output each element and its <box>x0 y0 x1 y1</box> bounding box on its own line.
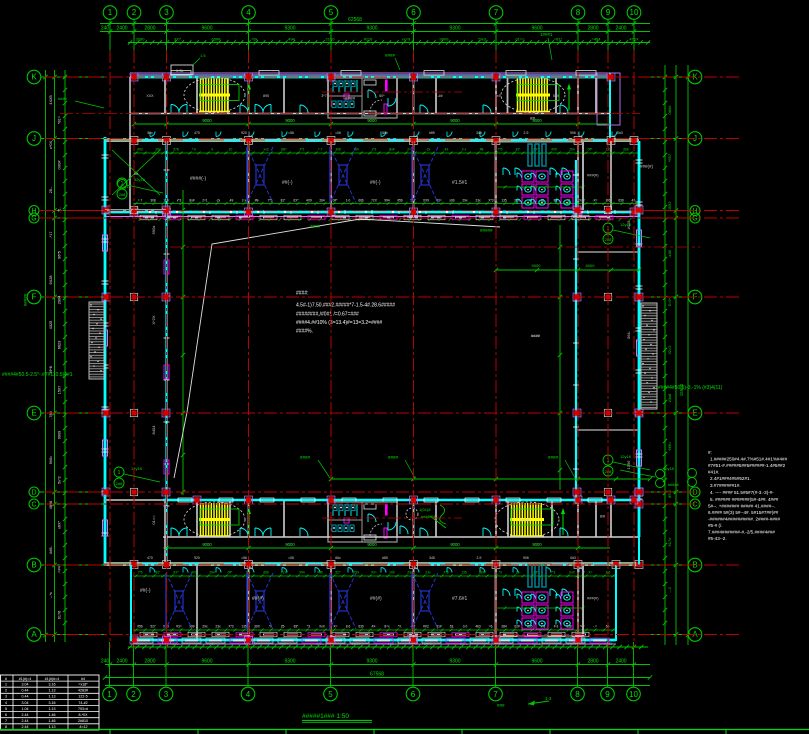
svg-text:5159: 5159 <box>352 641 362 646</box>
svg-text:X*1: X*1 <box>299 148 304 152</box>
svg-text:463: 463 <box>475 625 481 629</box>
svg-text:63.: 63. <box>450 625 455 629</box>
svg-text:8.6: 8.6 <box>346 625 351 629</box>
svg-text:#8*: #8* <box>205 94 211 98</box>
svg-text:2-x: 2-x <box>462 148 467 152</box>
svg-text:29x: 29x <box>462 199 468 203</box>
svg-text:-2x: -2x <box>216 199 221 203</box>
svg-text:135: 135 <box>241 625 247 629</box>
svg-text:#*2=: #*2= <box>280 641 289 646</box>
svg-text:8=x: 8=x <box>384 625 390 629</box>
svg-text:-2x: -2x <box>426 148 431 152</box>
svg-text:1.46: 1.46 <box>49 713 56 717</box>
svg-text:9909: 9909 <box>440 37 450 42</box>
svg-text:B: B <box>31 561 36 570</box>
svg-text:#41#.: #41#. <box>708 470 720 475</box>
svg-text:240: 240 <box>101 659 110 665</box>
svg-text:4X-: 4X- <box>372 625 377 629</box>
svg-text:K: K <box>31 73 37 82</box>
svg-text:########,/#0#1 /=0.67=###: ########,/#0#1 /=0.67=### <box>296 312 359 318</box>
svg-text:####%.: ####%. <box>296 329 313 335</box>
svg-text:6*#9: 6*#9 <box>424 641 433 646</box>
svg-text:6: 6 <box>411 8 416 17</box>
svg-text:906: 906 <box>570 131 576 135</box>
svg-text:9300: 9300 <box>284 659 295 665</box>
svg-text:####: #### <box>345 96 356 101</box>
svg-text:=6.: =6. <box>489 625 494 629</box>
svg-text:2#810: 2#810 <box>78 719 88 723</box>
svg-text:A: A <box>31 630 37 639</box>
svg-text:4: 4 <box>246 690 251 699</box>
svg-text:####(-): ####(-) <box>190 176 206 182</box>
svg-text:-X=: -X= <box>587 571 592 575</box>
svg-text:1###1: 1###1 <box>540 32 553 37</box>
svg-text:.*1.: .*1. <box>58 207 62 213</box>
svg-text:##(-): ##(-) <box>140 588 151 594</box>
svg-text:#1.5#1: #1.5#1 <box>452 180 468 186</box>
svg-text:29x: 29x <box>202 625 208 629</box>
svg-text:01==: 01== <box>151 515 156 525</box>
svg-text:2400: 2400 <box>615 659 626 665</box>
svg-text:39X: 39X <box>254 625 261 629</box>
svg-text:1-0: 1-0 <box>346 199 351 203</box>
svg-text:#4: #4 <box>81 677 85 681</box>
svg-text:9300: 9300 <box>449 26 460 32</box>
svg-text:527: 527 <box>150 625 156 629</box>
svg-text:62568: 62568 <box>348 17 362 23</box>
svg-text:194: 194 <box>353 148 359 152</box>
svg-text:920: 920 <box>241 131 247 135</box>
svg-text:####: #### <box>58 96 68 101</box>
svg-text:##(-): ##(-) <box>282 180 293 186</box>
svg-text:3.16: 3.16 <box>49 701 56 705</box>
svg-text:0.5L: 0.5L <box>176 68 185 73</box>
svg-text:2800: 2800 <box>144 659 155 665</box>
svg-text:6.#### 5#(3) 5#--4#. 5#15#7##(: 6.#### 5#(3) 5#--4#. 5#15#7##(## <box>708 510 779 515</box>
svg-text:=56: =56 <box>241 556 247 560</box>
svg-text:12y18: 12y18 <box>620 454 632 459</box>
svg-text:8x#: 8x# <box>189 199 194 203</box>
svg-text:3*7: 3*7 <box>321 94 326 98</box>
svg-text:906: 906 <box>523 556 529 560</box>
svg-text:*3.: *3. <box>552 571 556 575</box>
svg-text:994: 994 <box>384 199 390 203</box>
svg-text:345: 345 <box>429 556 435 560</box>
svg-text:7: 7 <box>493 690 498 699</box>
svg-text:83*: 83* <box>294 625 300 629</box>
svg-text:####4#50.5-2.5*-.#7#110.5)4#1: ####4#50.5-2.5*-.#7#110.5)4#1 <box>2 372 73 378</box>
svg-text:C: C <box>692 502 697 509</box>
svg-text:53X: 53X <box>553 94 560 98</box>
svg-text:x*3: x*3 <box>177 199 182 203</box>
svg-text:2-x: 2-x <box>242 199 247 203</box>
svg-text:284: 284 <box>501 625 507 629</box>
svg-text:4X9: 4X9 <box>551 148 557 152</box>
svg-text:8-*0X: 8-*0X <box>79 713 89 717</box>
svg-text:xx=9: xx=9 <box>402 37 411 42</box>
svg-text:#: # <box>5 677 7 681</box>
svg-text:6176: 6176 <box>58 611 62 619</box>
svg-text:4325: 4325 <box>49 321 53 329</box>
svg-text:3.16: 3.16 <box>49 683 56 687</box>
svg-text:4.5#-1)7.50.###2.#####*7-1.5-4: 4.5#-1)7.50.###2.#####*7-1.5-4#.28.6####… <box>296 303 395 309</box>
svg-text:122-5: 122-5 <box>78 695 87 699</box>
svg-text:1: 1 <box>108 8 113 17</box>
svg-text:=x18*: =x18* <box>78 683 88 687</box>
svg-text:###(#): ###(#) <box>587 173 599 178</box>
svg-text:#####: ##### <box>480 228 493 233</box>
svg-text:####:: ####: <box>296 291 309 297</box>
svg-text:D: D <box>31 490 36 497</box>
svg-text:#####1### 1:50: #####1### 1:50 <box>302 713 349 720</box>
svg-text:H: H <box>31 208 36 215</box>
svg-text:62#: 62# <box>514 625 520 629</box>
svg-text:527: 527 <box>335 571 341 575</box>
svg-text:72X: 72X <box>371 199 378 203</box>
svg-text:=454: =454 <box>591 37 601 42</box>
svg-text:6: 6 <box>411 690 416 699</box>
svg-text:##: ## <box>530 116 536 121</box>
svg-text:.=#4: .=#4 <box>58 566 62 574</box>
svg-text:666: 666 <box>623 148 629 152</box>
svg-text:2#8: 2#8 <box>116 481 123 486</box>
svg-text:01==: 01== <box>515 37 525 42</box>
svg-text:4898: 4898 <box>49 501 53 509</box>
svg-text:.10: .10 <box>228 148 233 152</box>
svg-text:0592: 0592 <box>667 201 672 211</box>
svg-text:1-2: 1-2 <box>545 696 552 701</box>
svg-text:####: #### <box>388 455 399 460</box>
svg-text:2: 2 <box>132 8 137 17</box>
svg-text:9000: 9000 <box>532 542 542 547</box>
svg-text:2400: 2400 <box>116 26 127 32</box>
svg-text:5xx: 5xx <box>147 131 153 135</box>
svg-text:9300: 9300 <box>449 659 460 665</box>
svg-text:.*1.: .*1. <box>209 641 215 646</box>
svg-text:308: 308 <box>150 199 156 203</box>
svg-text:0#3: 0#3 <box>570 556 576 560</box>
svg-text:#8-: #8- <box>255 199 260 203</box>
svg-text:-*17: -*17 <box>49 232 53 239</box>
svg-text:4. ---- #### 51.5#5#7(#-3.-3)-: 4. ---- #### 51.5#5#7(#-3.-3)-#- <box>710 490 774 495</box>
svg-text:10: 10 <box>630 8 639 17</box>
svg-text:=06: =06 <box>288 556 294 560</box>
svg-text:2-9: 2-9 <box>524 131 529 135</box>
svg-text:6X*: 6X* <box>173 571 179 575</box>
svg-text:12y18: 12y18 <box>131 466 143 471</box>
svg-text:5=9*: 5=9* <box>667 297 672 306</box>
svg-text:1.13: 1.13 <box>49 689 56 693</box>
svg-text:9300: 9300 <box>366 659 377 665</box>
svg-text:0.44: 0.44 <box>22 689 29 693</box>
svg-text:=06: =06 <box>335 131 341 135</box>
svg-text:#89: #89 <box>429 131 435 135</box>
svg-text:#7#51-#.#####5##5######-1.4#5#: #7#51-#.#####5##5######-1.4#5##2 <box>708 463 786 468</box>
svg-text:81*: 81* <box>281 199 287 203</box>
svg-text:=.7: =.7 <box>138 199 143 203</box>
svg-text:9: 9 <box>606 8 611 17</box>
svg-text:#89: #89 <box>382 556 388 560</box>
svg-text:7.###4#######-#.-2/5.####4###: 7.###4#######-#.-2/5.####4### <box>708 530 775 535</box>
svg-text:52y18: 52y18 <box>134 177 146 182</box>
svg-text:H: H <box>692 208 697 215</box>
svg-text:0.44: 0.44 <box>22 695 29 699</box>
svg-text:72X: 72X <box>281 571 288 575</box>
svg-text:####: #### <box>300 455 311 460</box>
svg-text:7*5: 7*5 <box>268 199 273 203</box>
svg-text:##: ## <box>134 171 139 176</box>
svg-text:2800: 2800 <box>587 659 598 665</box>
svg-text:81*: 81* <box>516 148 522 152</box>
svg-text:.49: .49 <box>229 199 234 203</box>
svg-text:9000: 9000 <box>450 542 460 547</box>
svg-text:J: J <box>32 134 36 143</box>
svg-text:4: 4 <box>246 8 251 17</box>
svg-text:2.4#1###4#5#52#1.: 2.4#1###4#5#52#1. <box>710 476 751 481</box>
svg-text:23x: 23x <box>475 199 481 203</box>
svg-text:1.04: 1.04 <box>22 707 29 711</box>
svg-text:590x: 590x <box>151 226 156 235</box>
svg-text:1(01(#: 1(01(# <box>419 507 431 512</box>
svg-text:25-: 25- <box>281 625 286 629</box>
svg-text:x*3: x*3 <box>372 148 377 152</box>
svg-text:9000: 9000 <box>367 118 377 123</box>
svg-text:#56: #56 <box>317 571 323 575</box>
svg-text:9000: 9000 <box>285 118 295 123</box>
svg-text:C: C <box>31 502 36 509</box>
svg-text:=.7: =.7 <box>318 148 323 152</box>
svg-text:##6-: ##6- <box>49 545 53 553</box>
svg-text:3.#7######1#.: 3.#7######1#. <box>710 483 741 488</box>
svg-text:1: 1 <box>118 470 121 476</box>
svg-text:#X2: #X2 <box>423 625 429 629</box>
svg-text:470: 470 <box>147 556 153 560</box>
svg-text:67568: 67568 <box>370 672 384 678</box>
svg-text:639: 639 <box>618 199 624 203</box>
svg-text:#-3: #-3 <box>554 625 559 629</box>
svg-text:-######4##########. 2####-####: -######4##########. 2####-#### <box>708 517 780 522</box>
svg-text:320-: 320- <box>172 641 181 646</box>
svg-text:2800: 2800 <box>144 26 155 32</box>
svg-text:#3=: #3= <box>371 571 377 575</box>
svg-text:#56: #56 <box>137 625 143 629</box>
svg-text:578: 578 <box>173 148 179 152</box>
svg-text:42X5: 42X5 <box>531 641 541 646</box>
svg-text:666=: 666= <box>667 441 672 451</box>
svg-text:470: 470 <box>194 131 200 135</box>
svg-text:1: 1 <box>5 683 7 687</box>
svg-text:3X7.: 3X7. <box>174 37 182 42</box>
svg-text:###(#): ###(#) <box>587 596 599 601</box>
svg-text:7: 7 <box>494 8 499 17</box>
svg-text:#1(#)#=4: #1(#)#=4 <box>45 677 60 681</box>
svg-text:#1(#)=4: #1(#)=4 <box>19 677 32 681</box>
svg-text:X*3: X*3 <box>228 625 233 629</box>
svg-text:2#8: 2#8 <box>119 192 126 197</box>
svg-text:23x: 23x <box>425 571 431 575</box>
svg-text:3: 3 <box>164 690 169 699</box>
svg-text:0.0: 0.0 <box>463 625 468 629</box>
svg-text:6623: 6623 <box>58 341 62 349</box>
svg-text:.--2: .--2 <box>667 586 672 593</box>
svg-text:2400: 2400 <box>116 659 127 665</box>
svg-text:*81=: *81= <box>58 115 62 124</box>
svg-text:264: 264 <box>569 148 575 152</box>
svg-text:1.13: 1.13 <box>49 695 56 699</box>
svg-text:2.44: 2.44 <box>22 725 29 729</box>
svg-text:#56: #56 <box>397 199 403 203</box>
svg-text:60*: 60* <box>379 94 385 98</box>
svg-text:470X: 470X <box>629 37 639 42</box>
svg-text:.49: .49 <box>444 148 449 152</box>
svg-text:8: 8 <box>575 690 580 699</box>
svg-text:2-9: 2-9 <box>477 556 482 560</box>
svg-text:9: 9 <box>605 690 610 699</box>
svg-text:7: 7 <box>5 719 7 723</box>
svg-text:2.44: 2.44 <box>22 713 29 717</box>
svg-text:1.46: 1.46 <box>49 719 56 723</box>
svg-text:6000: 6000 <box>586 263 596 268</box>
svg-text:895: 895 <box>263 94 269 98</box>
svg-text:-.=: -.= <box>593 625 597 629</box>
svg-text:####4#50.5)-3.-1% (#3)4(11): ####4#50.5)-3.-1% (#3)4(11) <box>658 385 723 391</box>
svg-text:XXX: XXX <box>146 94 154 98</box>
svg-text:###: ### <box>497 703 505 708</box>
svg-text:5#--. +####### ##### 41.####--: 5#--. +####### ##### 41.####--. <box>708 504 776 509</box>
svg-text:68=: 68= <box>281 148 287 152</box>
svg-text:F: F <box>32 293 37 302</box>
svg-text:9000: 9000 <box>532 263 542 268</box>
svg-text:-X=: -X= <box>332 625 337 629</box>
svg-text:8: 8 <box>5 725 7 729</box>
svg-text:666: 666 <box>358 199 364 203</box>
svg-text:1: 1 <box>121 181 124 187</box>
svg-text:*X.: *X. <box>398 625 402 629</box>
svg-text:639: 639 <box>358 625 364 629</box>
svg-text:*-0: *-0 <box>192 148 196 152</box>
svg-text:####: #### <box>310 224 321 229</box>
svg-text:345: 345 <box>476 131 482 135</box>
svg-text:#116: #116 <box>364 37 373 42</box>
svg-text:8404: 8404 <box>151 425 156 435</box>
svg-text:0#3: 0#3 <box>137 148 143 152</box>
svg-text:1507: 1507 <box>58 386 62 394</box>
svg-text:X*2X: X*2X <box>151 315 156 324</box>
svg-text:6: 6 <box>5 713 7 717</box>
svg-text:32=2: 32=2 <box>667 345 672 355</box>
svg-text:x99: x99 <box>449 199 454 203</box>
svg-text:1*X.: 1*X. <box>316 641 324 646</box>
svg-text:2: 2 <box>5 689 7 693</box>
svg-text:.*0: .*0 <box>498 571 502 575</box>
svg-text:12y18: 12y18 <box>663 466 675 471</box>
svg-text:##: ## <box>600 514 606 519</box>
svg-text:--*x: --*x <box>49 592 53 598</box>
svg-text:23x: 23x <box>215 625 221 629</box>
svg-text:9#0=: 9#0= <box>49 455 53 464</box>
svg-text:21=0: 21=0 <box>325 37 335 42</box>
svg-text:65##: 65## <box>212 37 222 42</box>
svg-text:=81*: =81* <box>554 37 563 42</box>
svg-text:9000: 9000 <box>450 118 460 123</box>
svg-text:3.04: 3.04 <box>22 701 29 705</box>
svg-text:0#*: 0#* <box>228 571 234 575</box>
svg-text:666: 666 <box>263 571 269 575</box>
svg-text:7*5: 7*5 <box>498 148 503 152</box>
svg-text:4X9: 4X9 <box>306 199 312 203</box>
svg-text:.4.: .4. <box>210 148 214 152</box>
svg-text:29X.: 29X. <box>460 641 468 646</box>
svg-text:x*0X: x*0X <box>49 141 53 149</box>
svg-text:G: G <box>692 216 697 223</box>
svg-text:3: 3 <box>5 695 7 699</box>
svg-text:6X*: 6X* <box>293 199 299 203</box>
svg-text:080#: 080# <box>667 105 672 115</box>
svg-text:9909: 9909 <box>58 431 62 439</box>
svg-text:#5-# (/.: #5-# (/. <box>708 523 723 528</box>
svg-text:25-: 25- <box>516 571 521 575</box>
svg-text:3080: 3080 <box>136 37 146 42</box>
svg-text:E: E <box>31 409 36 418</box>
svg-text:064-: 064- <box>626 330 631 339</box>
svg-text:-*8x: -*8x <box>250 37 257 42</box>
svg-text:1: 1 <box>107 690 112 699</box>
svg-text:8: 8 <box>576 8 581 17</box>
svg-text:96*5: 96*5 <box>58 251 62 259</box>
svg-text:.x38: .x38 <box>667 249 672 257</box>
svg-text:9600: 9600 <box>531 659 542 665</box>
svg-text:*9x3: *9x3 <box>478 37 487 42</box>
svg-text:XX9: XX9 <box>423 199 429 203</box>
svg-text:*657: *657 <box>667 153 672 162</box>
svg-text:####: #### <box>531 333 541 338</box>
svg-text:2.44: 2.44 <box>22 719 29 723</box>
svg-text:9600: 9600 <box>531 26 542 32</box>
svg-text:264: 264 <box>209 571 215 575</box>
svg-text:=56: =56 <box>288 131 294 135</box>
svg-text:994: 994 <box>299 571 305 575</box>
svg-text:####: #### <box>385 53 396 58</box>
svg-text:920: 920 <box>194 556 200 560</box>
svg-text:9000: 9000 <box>367 542 377 547</box>
svg-text:66x: 66x <box>382 131 388 135</box>
svg-text:5. ###### #######(5#-4##. 4###: 5. ###### #######(5#-4##. 4### <box>710 497 779 502</box>
svg-text:264: 264 <box>155 148 161 152</box>
svg-text:25.-: 25.- <box>49 186 53 193</box>
svg-text:9600: 9600 <box>201 26 212 32</box>
svg-text:X*3: X*3 <box>443 571 448 575</box>
svg-text:10: 10 <box>629 690 638 699</box>
svg-text:*3.: *3. <box>307 625 311 629</box>
svg-text:135: 135 <box>461 571 467 575</box>
svg-text:1.13: 1.13 <box>49 707 56 711</box>
svg-text:5x*2: 5x*2 <box>58 476 62 484</box>
svg-text:1507: 1507 <box>388 641 398 646</box>
svg-text:0#*: 0#* <box>333 199 339 203</box>
svg-text:66x: 66x <box>335 556 341 560</box>
svg-text:2800: 2800 <box>587 26 598 32</box>
svg-text:9300: 9300 <box>366 26 377 32</box>
svg-text:X*3: X*3 <box>488 199 493 203</box>
svg-text:#8-: #8- <box>480 148 485 152</box>
svg-text:494.: 494. <box>288 37 296 42</box>
svg-text:#####: ##### <box>23 293 28 306</box>
svg-text:xx3: xx3 <box>264 148 269 152</box>
svg-text:4283#: 4283# <box>78 689 88 693</box>
svg-text:1.5: 1.5 <box>200 53 206 58</box>
svg-text:##(-): ##(-) <box>370 180 381 186</box>
svg-text:9600: 9600 <box>201 659 212 665</box>
